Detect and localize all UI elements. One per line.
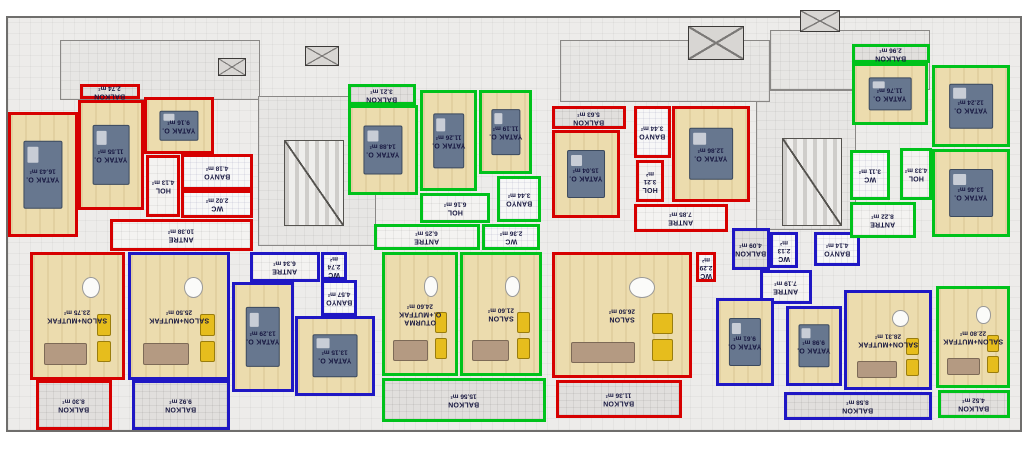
- room-name: SALON: [488, 314, 514, 322]
- shaft-c-icon: [688, 26, 744, 60]
- room-name: BANYO: [824, 249, 850, 257]
- room-unit-1-red-left-yatak-o-2: YATAK O.11.55 m²: [78, 100, 144, 210]
- room-unit-4-red-center-salon-6: SALON26.50 m²: [552, 252, 692, 378]
- armchair-icon: [97, 341, 111, 363]
- room-unit-3-green-center-yatak-o-1: YATAK O.14.88 m²: [348, 105, 418, 195]
- room-label: BALKON2.96 m²: [875, 46, 906, 62]
- room-unit-3-green-center-balkon-10: BALKON15.56 m²: [382, 378, 546, 422]
- room-unit-3-green-center-wc-7: WC2.36 m²: [482, 224, 540, 250]
- room-label: BALKON8.58 m²: [842, 398, 873, 414]
- room-label: WC3.11 m²: [859, 167, 881, 183]
- room-unit-6-green-right-yatak-o-1: YATAK O.11.76 m²: [852, 63, 928, 125]
- staircase-right-icon: [782, 138, 842, 226]
- room-name: ANTRE: [870, 220, 895, 228]
- armchair-icon: [906, 338, 919, 355]
- room-name: WC: [324, 269, 344, 277]
- room-name: BALKON: [958, 404, 989, 412]
- room-area: 3.44 m²: [506, 191, 532, 198]
- table-icon: [82, 277, 100, 299]
- room-label: ANTRE6.34 m²: [272, 259, 297, 275]
- room-area: 3.21 m²: [366, 87, 397, 94]
- armchair-icon: [435, 312, 447, 333]
- room-unit-1-red-left-yatak-o-1: YATAK O.16.43 m²: [8, 112, 78, 237]
- armchair-icon: [652, 339, 673, 360]
- armchair-icon: [517, 338, 530, 359]
- shaft-d-icon: [800, 10, 840, 32]
- room-name: ANTRE: [168, 235, 194, 243]
- armchair-icon: [987, 335, 999, 352]
- room-unit-5-blue-right-yatak-o-4: YATAK O.9.61 m²: [716, 298, 774, 386]
- table-icon: [505, 276, 521, 297]
- room-label: SALON21.60 m²: [488, 306, 514, 322]
- bed-icon: [689, 128, 733, 180]
- room-label: BALKON11.36 m²: [603, 391, 634, 407]
- room-unit-6-green-right-salon-mutfak-7: SALON+MUTFAK22.80 m²: [936, 286, 1010, 388]
- armchair-icon: [517, 312, 530, 333]
- room-name: BALKON: [603, 399, 634, 407]
- room-unit-4-red-center-antre-5: ANTRE7.85 m²: [634, 204, 728, 232]
- room-unit-2-blue-left-wc-2: WC2.74 m²: [321, 252, 347, 280]
- room-label: BALKON8.30 m²: [58, 397, 89, 413]
- armchair-icon: [435, 338, 447, 359]
- bed-icon: [869, 77, 912, 110]
- room-name: BALKON: [735, 249, 766, 257]
- room-unit-2-blue-left-yatak-o-5: YATAK O.13.15 m²: [295, 316, 375, 396]
- room-area: 21.60 m²: [488, 306, 514, 313]
- bed-icon: [799, 324, 830, 367]
- room-label: BANYO4.18 m²: [204, 164, 230, 180]
- room-area: 4.18 m²: [204, 164, 230, 171]
- room-unit-6-green-right-balkon-8: BALKON4.52 m²: [938, 390, 1010, 418]
- room-name: BANYO: [326, 298, 352, 306]
- room-label: HOL3.21 m²: [639, 170, 661, 193]
- bed-icon: [567, 150, 605, 198]
- room-label: BALKON9.92 m²: [165, 397, 196, 413]
- room-area: 7.19 m²: [773, 279, 798, 286]
- room-area: 8.22 m²: [870, 212, 895, 219]
- table-icon: [184, 277, 203, 299]
- room-label: HOL4.33 m²: [905, 166, 927, 182]
- room-name: HOL: [639, 184, 661, 192]
- room-unit-4-red-center-balkon-8: BALKON11.36 m²: [556, 380, 682, 418]
- room-label: ANTRE10.38 m²: [168, 227, 194, 243]
- room-label: ANTRE7.85 m²: [668, 210, 693, 226]
- room-area: 2.74 m²: [324, 255, 344, 270]
- room-area: 6.34 m²: [272, 259, 297, 266]
- room-unit-6-green-right-yatak-o-2: YATAK O.12.24 m²: [932, 65, 1010, 147]
- room-label: HOL6.16 m²: [444, 200, 466, 216]
- room-unit-4-red-center-banyo-2: BANYO3.44 m²: [634, 106, 671, 158]
- floor-plan: BALKON2.74 m²YATAK O.16.43 m²YATAK O.11.…: [0, 0, 1024, 458]
- room-unit-2-blue-left-antre-1: ANTRE6.34 m²: [250, 252, 320, 282]
- room-name: BANYO: [506, 199, 532, 207]
- room-unit-3-green-center-antre-6: ANTRE6.25 m²: [374, 224, 480, 250]
- room-name: HOL: [444, 208, 466, 216]
- staircase-left-icon: [284, 140, 344, 226]
- room-label: BANYO3.44 m²: [639, 124, 665, 140]
- room-unit-3-green-center-yatak-o-3: YATAK O.11.19 m²: [479, 90, 532, 174]
- room-unit-1-red-left-balkon-0: BALKON2.74 m²: [80, 84, 140, 99]
- room-area: 2.29 m²: [699, 256, 713, 271]
- room-area: 2.13 m²: [773, 239, 795, 254]
- armchair-icon: [200, 341, 215, 363]
- bed-icon: [313, 334, 358, 377]
- room-area: 5.63 m²: [573, 110, 604, 117]
- room-unit-5-blue-right-yatak-o-5: YATAK O.9.98 m²: [786, 306, 842, 386]
- room-name: BALKON: [573, 117, 604, 125]
- room-unit-6-green-right-wc-4: WC3.11 m²: [850, 150, 890, 200]
- room-name: BALKON: [366, 94, 397, 102]
- room-name: BALKON: [875, 53, 906, 61]
- room-unit-2-blue-left-banyo-3: BANYO4.57 m²: [321, 280, 357, 316]
- table-icon: [629, 277, 655, 298]
- room-area: 2.36 m²: [500, 229, 522, 236]
- room-unit-1-red-left-banyo-5: BANYO4.18 m²: [181, 154, 253, 190]
- room-unit-5-blue-right-balkon-0: BALKON4.09 m²: [732, 228, 770, 270]
- room-label: SALON26.50 m²: [609, 307, 635, 323]
- room-unit-1-red-left-salon-mutfak-8: SALON+MUTFAK23.75 m²: [30, 252, 125, 380]
- room-unit-4-red-center-wc-7: WC2.29 m²: [696, 252, 716, 282]
- room-label: BALKON4.09 m²: [735, 241, 766, 257]
- room-area: 4.14 m²: [824, 241, 850, 248]
- room-label: WC2.36 m²: [500, 229, 522, 245]
- room-name: BANYO: [204, 172, 230, 180]
- room-label: HOL4.13 m²: [152, 178, 174, 194]
- sofa-icon: [857, 361, 897, 378]
- room-label: BALKON3.21 m²: [366, 87, 397, 103]
- room-name: SALON: [609, 315, 635, 323]
- room-unit-4-red-center-yatak-o-4: YATAK O.12.86 m²: [672, 106, 750, 202]
- room-area: 8.58 m²: [842, 398, 873, 405]
- room-name: HOL: [152, 186, 174, 194]
- room-area: 10.38 m²: [168, 227, 194, 234]
- room-name: WC: [773, 253, 795, 261]
- bed-icon: [491, 109, 520, 155]
- bed-icon: [159, 110, 198, 141]
- room-label: ANTRE7.19 m²: [773, 279, 798, 295]
- room-area: 4.57 m²: [326, 290, 352, 297]
- armchair-icon: [200, 314, 215, 336]
- room-area: 26.50 m²: [609, 307, 635, 314]
- sofa-icon: [947, 358, 980, 375]
- room-unit-2-blue-left-yatak-o-4: YATAK O.13.29 m²: [232, 282, 294, 392]
- room-unit-3-green-center-oturma-o-mutfak-8: OTURMA O.+MUTFAK24.60 m²: [382, 252, 458, 376]
- room-area: 8.30 m²: [58, 397, 89, 404]
- room-area: 4.52 m²: [958, 396, 989, 403]
- room-label: ANTRE6.25 m²: [414, 229, 439, 245]
- room-name: BALKON: [842, 406, 873, 414]
- room-name: ANTRE: [668, 218, 693, 226]
- room-name: WC: [859, 175, 881, 183]
- sofa-icon: [393, 340, 427, 361]
- room-unit-4-red-center-balkon-0: BALKON5.63 m²: [552, 106, 626, 129]
- room-area: 9.92 m²: [165, 397, 196, 404]
- room-unit-5-blue-right-salon-mutfak-6: SALON+MUTFAK28.31 m²: [844, 290, 932, 390]
- room-unit-6-green-right-antre-6: ANTRE8.22 m²: [850, 202, 916, 238]
- room-label: BALKON5.63 m²: [573, 110, 604, 126]
- room-area: 2.96 m²: [875, 46, 906, 53]
- room-area: 4.33 m²: [905, 166, 927, 173]
- table-icon: [424, 276, 439, 297]
- room-unit-1-red-left-antre-7: ANTRE10.38 m²: [110, 219, 253, 251]
- armchair-icon: [987, 356, 999, 373]
- room-unit-1-red-left-yatak-o-3: YATAK O.9.16 m²: [144, 97, 214, 154]
- bed-icon: [246, 307, 280, 367]
- room-unit-3-green-center-hol-4: HOL6.16 m²: [420, 193, 490, 223]
- room-unit-2-blue-left-salon-mutfak-0: SALON+MUTFAK25.50 m²: [128, 252, 230, 380]
- room-area: 6.16 m²: [444, 200, 466, 207]
- room-area: 4.13 m²: [152, 178, 174, 185]
- room-label: BALKON4.52 m²: [958, 396, 989, 412]
- room-label: WC2.74 m²: [324, 255, 344, 278]
- room-label: BANYO4.57 m²: [326, 290, 352, 306]
- room-unit-1-red-left-hol-4: HOL4.13 m²: [146, 155, 180, 217]
- room-area: 3.21 m²: [639, 170, 661, 185]
- room-unit-3-green-center-balkon-0: BALKON3.21 m²: [348, 84, 416, 105]
- bed-icon: [433, 113, 465, 168]
- room-name: WC: [699, 270, 713, 278]
- room-area: 4.09 m²: [735, 241, 766, 248]
- bed-icon: [949, 169, 993, 217]
- room-name: WC: [206, 204, 228, 212]
- room-area: 3.11 m²: [859, 167, 881, 174]
- sofa-icon: [571, 342, 635, 363]
- room-area: 11.36 m²: [603, 391, 634, 398]
- room-unit-5-blue-right-balkon-7: BALKON8.58 m²: [784, 392, 932, 420]
- sofa-icon: [472, 340, 509, 361]
- room-area: 7.85 m²: [668, 210, 693, 217]
- room-unit-6-green-right-hol-3: HOL4.33 m²: [900, 148, 932, 200]
- sofa-icon: [44, 343, 87, 365]
- room-name: BALKON: [94, 91, 125, 99]
- armchair-icon: [97, 314, 111, 336]
- room-name: BALKON: [58, 405, 89, 413]
- room-label: WC2.13 m²: [773, 239, 795, 262]
- room-unit-3-green-center-banyo-5: BANYO3.44 m²: [497, 176, 541, 222]
- room-unit-6-green-right-balkon-0: BALKON2.96 m²: [852, 44, 930, 63]
- room-unit-6-green-right-yatak-o-5: YATAK O.13.46 m²: [932, 149, 1010, 237]
- room-area: 2.74 m²: [94, 84, 125, 91]
- room-unit-4-red-center-yatak-o-1: YATAK O.15.04 m²: [552, 130, 620, 218]
- room-name: ANTRE: [773, 287, 798, 295]
- table-icon: [892, 310, 909, 327]
- room-unit-5-blue-right-wc-1: WC2.13 m²: [770, 232, 798, 268]
- room-area: 15.56 m²: [448, 392, 479, 399]
- room-name: BALKON: [448, 400, 479, 408]
- room-label: WC2.02 m²: [206, 196, 228, 212]
- bed-icon: [23, 140, 62, 209]
- room-unit-3-green-center-salon-9: SALON21.60 m²: [460, 252, 542, 376]
- room-name: BALKON: [165, 405, 196, 413]
- room-unit-2-blue-left-balkon-6: BALKON9.92 m²: [132, 380, 230, 430]
- room-name: HOL: [905, 174, 927, 182]
- room-area: 24.60 m²: [385, 302, 455, 309]
- room-unit-1-red-left-wc-6: WC2.02 m²: [181, 190, 253, 218]
- sofa-icon: [143, 343, 189, 365]
- room-unit-1-red-left-balkon-9: BALKON8.30 m²: [36, 380, 112, 430]
- room-label: ANTRE8.22 m²: [870, 212, 895, 228]
- shaft-a-icon: [218, 58, 246, 76]
- room-label: WC2.29 m²: [699, 256, 713, 279]
- room-name: BANYO: [639, 132, 665, 140]
- room-area: 2.02 m²: [206, 196, 228, 203]
- bed-icon: [363, 125, 402, 174]
- armchair-icon: [652, 313, 673, 334]
- room-area: 6.25 m²: [414, 229, 439, 236]
- table-icon: [976, 306, 990, 323]
- room-label: BANYO3.44 m²: [506, 191, 532, 207]
- room-unit-4-red-center-hol-3: HOL3.21 m²: [636, 160, 664, 202]
- room-name: ANTRE: [272, 267, 297, 275]
- room-label: BALKON2.74 m²: [94, 84, 125, 100]
- bed-icon: [729, 318, 761, 366]
- shaft-b-icon: [305, 46, 339, 66]
- room-label: BANYO4.14 m²: [824, 241, 850, 257]
- room-label: BALKON15.56 m²: [448, 392, 479, 408]
- bed-icon: [949, 84, 993, 129]
- armchair-icon: [906, 359, 919, 376]
- bed-icon: [93, 125, 130, 185]
- room-name: ANTRE: [414, 237, 439, 245]
- room-unit-3-green-center-yatak-o-2: YATAK O.11.26 m²: [420, 90, 477, 191]
- room-area: 3.44 m²: [639, 124, 665, 131]
- room-name: WC: [500, 237, 522, 245]
